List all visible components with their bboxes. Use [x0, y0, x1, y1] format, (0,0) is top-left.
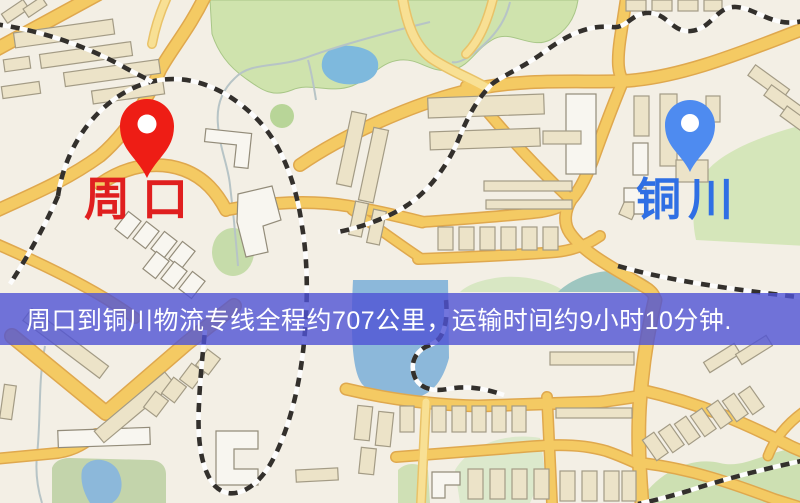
banner-text: 周口到铜川物流专线全程约707公里，运输时间约9小时10分钟. [26, 301, 732, 337]
destination-label: 铜川 [636, 177, 740, 222]
map-graphic [0, 0, 800, 503]
map-canvas[interactable]: 周口 铜川 周口到铜川物流专线全程约707公里，运输时间约9小时10分钟. [0, 0, 800, 503]
route-info-banner: 周口到铜川物流专线全程约707公里，运输时间约9小时10分钟. [0, 293, 800, 345]
origin-pin-hole [138, 115, 157, 134]
green-patch [270, 104, 294, 128]
origin-label: 周口 [84, 176, 200, 222]
pond [322, 46, 379, 85]
destination-pin-hole [681, 114, 699, 132]
